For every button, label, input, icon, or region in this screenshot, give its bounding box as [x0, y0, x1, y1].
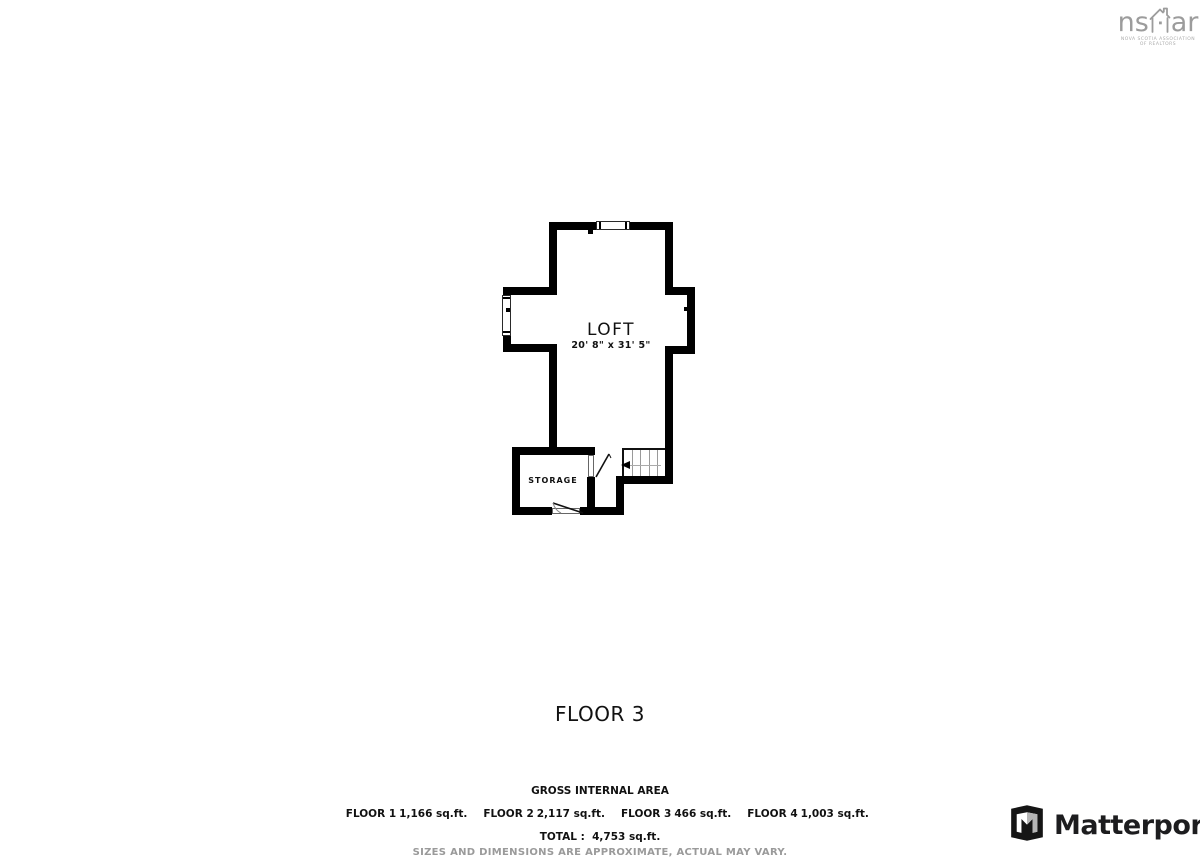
floor-area-item: FLOOR 11,166 sq.ft. [346, 808, 468, 820]
gross-internal-area-heading: GROSS INTERNAL AREA [0, 786, 1200, 798]
stair-step-line [632, 450, 633, 476]
stairs-edge [622, 448, 665, 450]
wall [616, 476, 673, 484]
matterport-logo: Matterport [1008, 804, 1200, 846]
floor-label: FLOOR 4 [747, 808, 797, 820]
wall [549, 352, 557, 455]
window-end-cap [625, 222, 627, 229]
wall [512, 447, 595, 455]
door-threshold [588, 455, 594, 477]
floor-area: 2,117 sq.ft. [537, 808, 605, 820]
door-swing [596, 454, 609, 477]
window-end-cap [503, 297, 510, 299]
floor-label: FLOOR 3 [621, 808, 671, 820]
room-label-storage: STORAGE [514, 476, 592, 485]
disclaimer-text: SIZES AND DIMENSIONS ARE APPROXIMATE, AC… [0, 847, 1200, 858]
floor-title: FLOOR 3 [0, 702, 1200, 726]
wall-marker [684, 307, 688, 311]
matterport-icon [1008, 804, 1046, 846]
wall [503, 287, 557, 295]
matterport-logo-text: Matterport [1054, 810, 1200, 841]
stairs-direction-line [628, 465, 661, 466]
floor-area: 1,003 sq.ft. [801, 808, 869, 820]
stairs-direction-arrow-icon [621, 461, 630, 469]
window-symbol [502, 295, 511, 336]
wall [549, 222, 557, 295]
wall [616, 476, 624, 515]
door-threshold [552, 508, 580, 514]
wall [512, 507, 552, 515]
floor-area-item: FLOOR 22,117 sq.ft. [483, 808, 605, 820]
window-end-cap [599, 222, 601, 229]
floor-label: FLOOR 2 [483, 808, 533, 820]
stair-step-line [649, 450, 650, 476]
room-dimensions-loft: 20' 8" x 31' 5" [540, 340, 682, 351]
floor-area: 466 sq.ft. [674, 808, 731, 820]
wall [665, 354, 673, 484]
wall [687, 287, 695, 354]
wall-marker [588, 229, 593, 234]
floor-area: 1,166 sq.ft. [399, 808, 467, 820]
floor-label: FLOOR 1 [346, 808, 396, 820]
stair-step-line [657, 450, 658, 476]
window-end-cap [503, 331, 510, 333]
floor-area-item: FLOOR 3466 sq.ft. [621, 808, 731, 820]
wall [665, 222, 673, 295]
wall-marker [506, 308, 510, 312]
room-label-loft: LOFT [540, 320, 682, 340]
floor-area-item: FLOOR 41,003 sq.ft. [747, 808, 869, 820]
door-swing [609, 454, 611, 458]
stair-step-line [640, 450, 641, 476]
